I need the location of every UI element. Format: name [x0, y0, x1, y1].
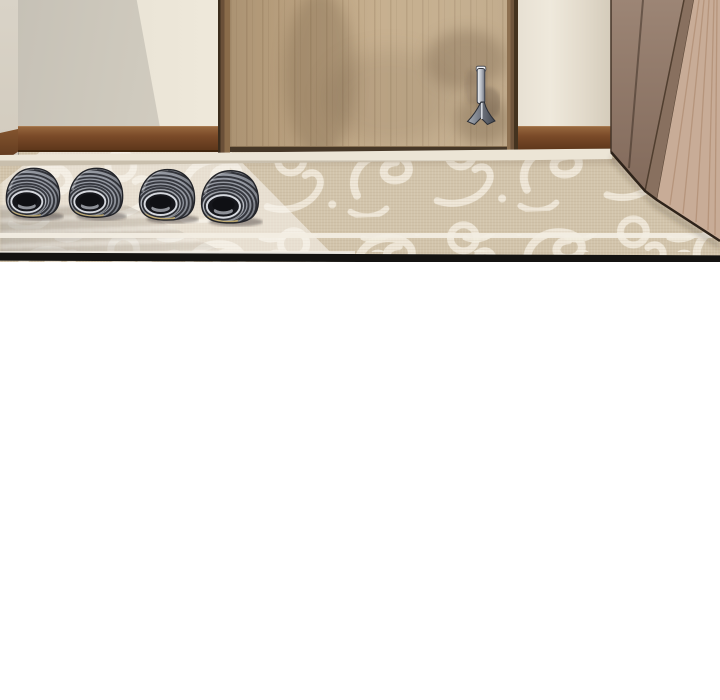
handle-bar	[477, 69, 485, 104]
slipper-4	[197, 166, 263, 227]
webtoon-page	[0, 0, 720, 700]
door-frame-left	[218, 0, 230, 158]
door-frame-right	[507, 0, 518, 156]
rug-border-line	[0, 233, 720, 238]
slipper-1	[2, 164, 64, 221]
entryway-panel	[0, 0, 720, 262]
cabinet-seam	[629, 0, 643, 168]
panel-bottom-border	[0, 253, 720, 262]
door-handle	[464, 63, 500, 125]
baseboard-right	[517, 126, 612, 152]
slipper-3	[135, 165, 199, 224]
baseboard-left	[18, 126, 231, 152]
slipper-2	[65, 164, 127, 221]
blank-gutter	[0, 262, 720, 700]
